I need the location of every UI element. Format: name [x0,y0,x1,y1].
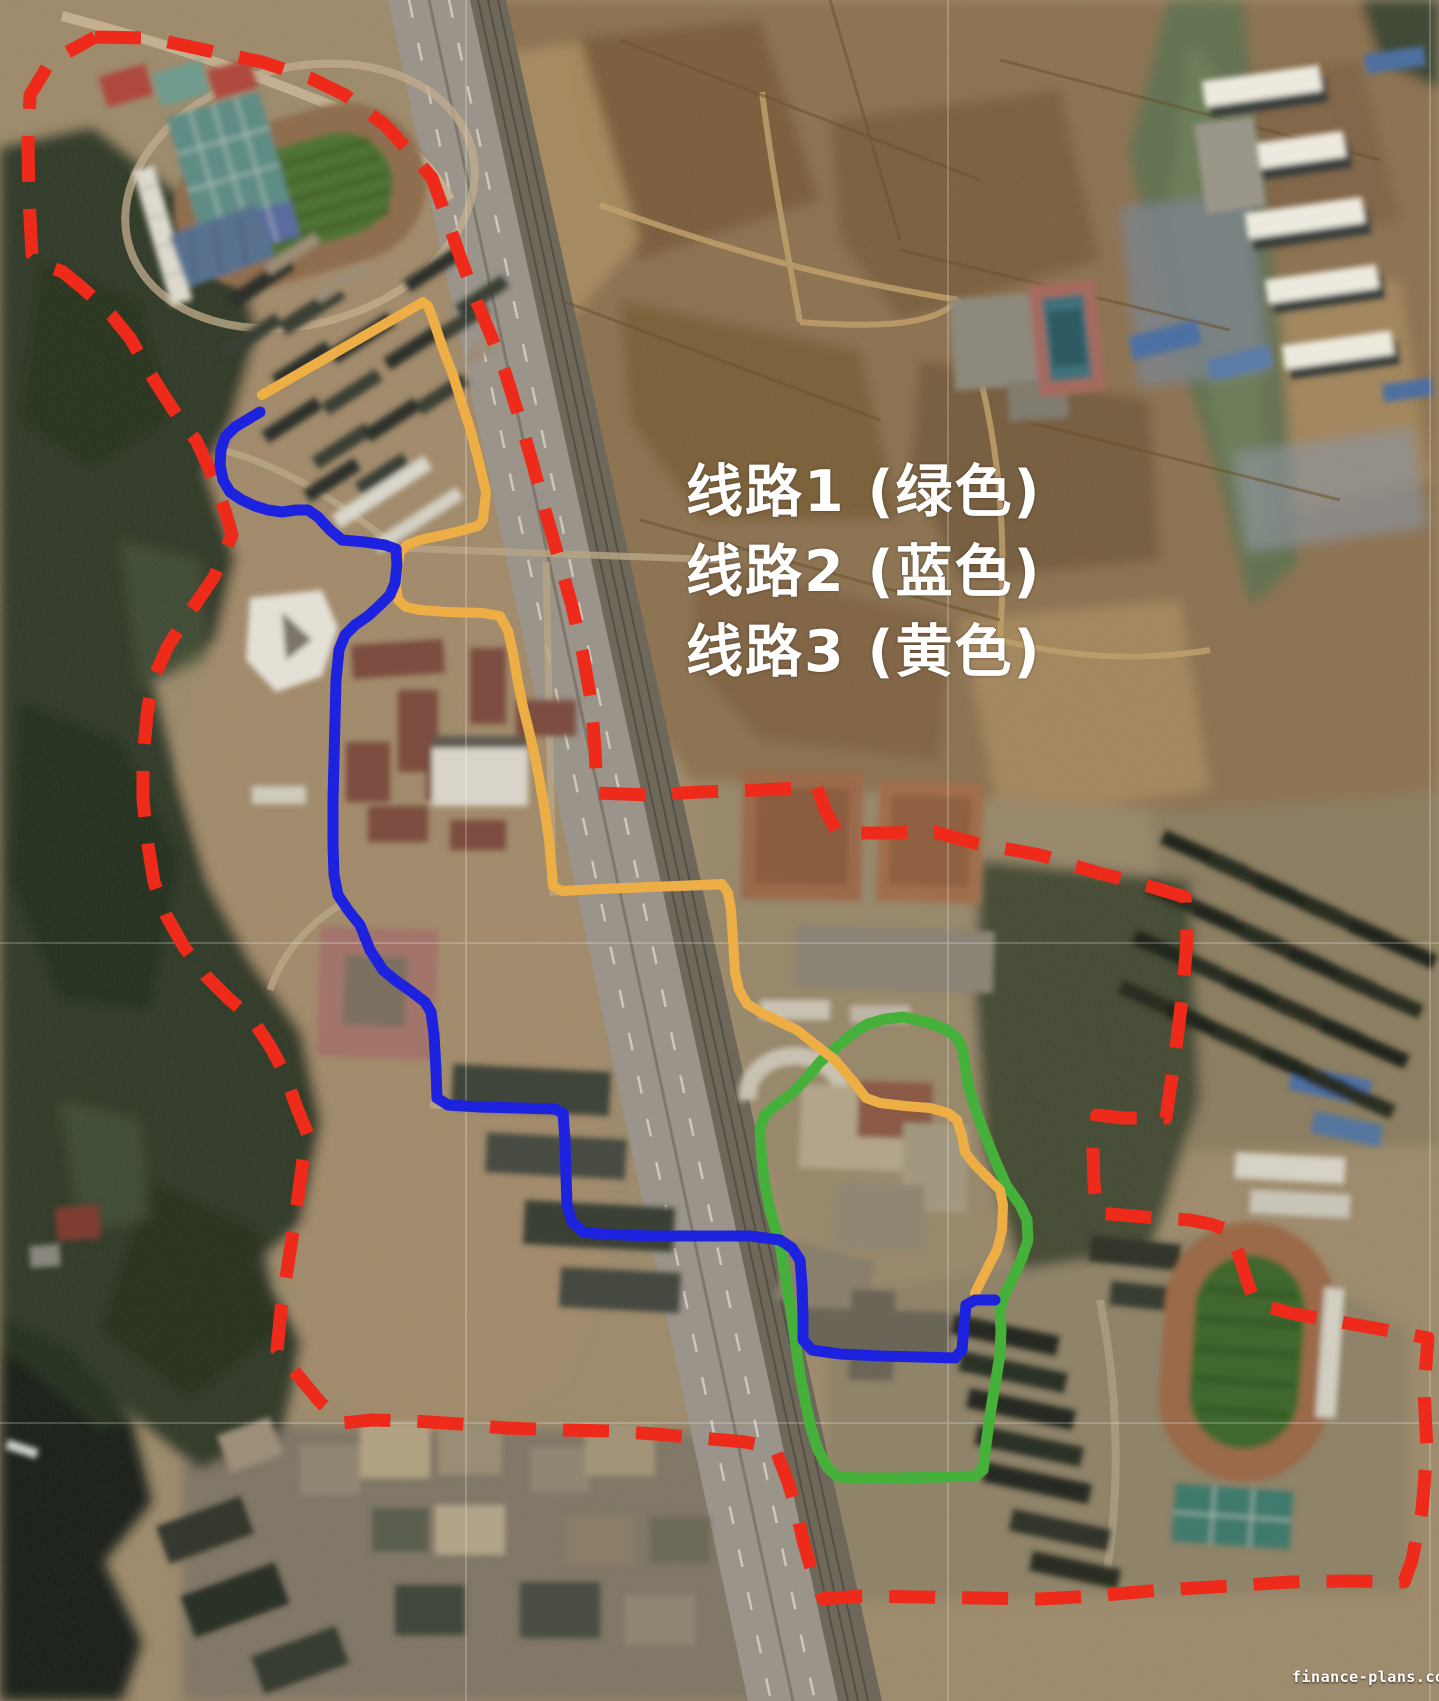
legend-route-2: 线路2 (蓝色) [686,532,1042,612]
legend-route-3: 线路3 (黄色) [686,612,1042,692]
route-legend: 线路1 (绿色) 线路2 (蓝色) 线路3 (黄色) [686,452,1042,692]
satellite-map: 线路1 (绿色) 线路2 (蓝色) 线路3 (黄色) finance-plans… [0,0,1439,1701]
legend-route-1: 线路1 (绿色) [686,452,1042,532]
watermark: finance-plans.com [1292,1668,1439,1686]
